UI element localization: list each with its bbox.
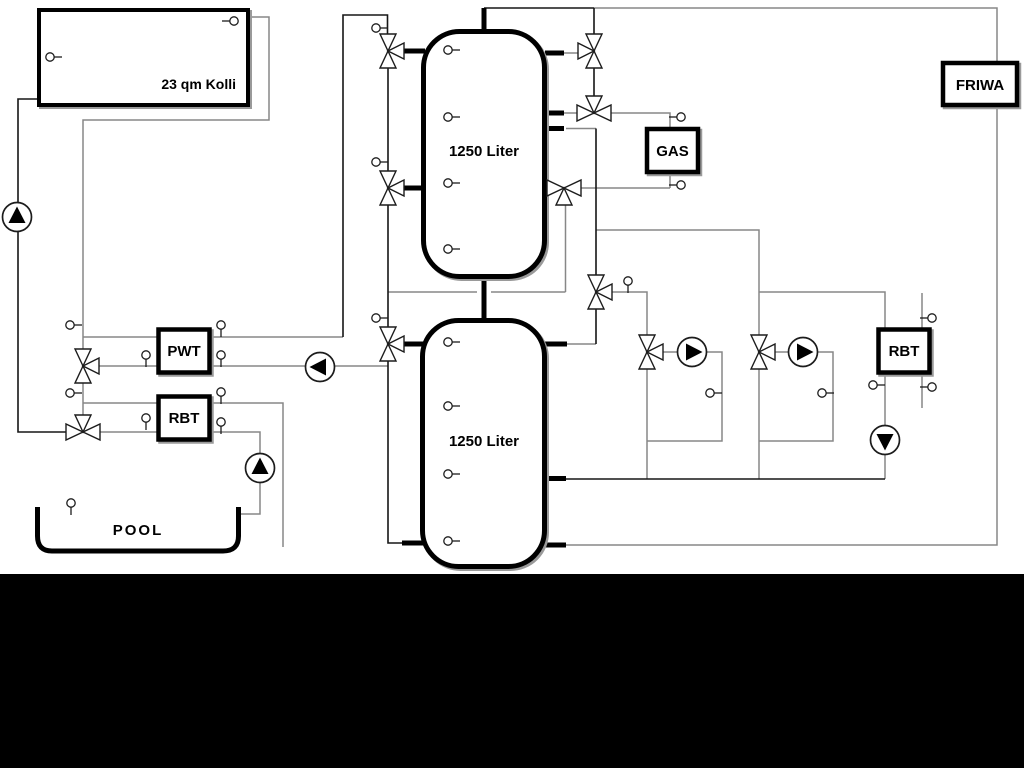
temperature-sensor-icon [372,24,388,32]
temperature-sensor-icon [217,388,225,404]
pipe-tank-left-column-lower [388,361,404,543]
temperature-sensor-icon [217,321,225,337]
circuit-2-pump-icon [789,338,818,367]
pipe-circuit1-feed [612,292,647,335]
three-way-valve-circuit1-icon [639,335,663,369]
pwt-secondary-pump-icon [306,353,335,382]
rbt-right-pump-icon [871,426,900,455]
pool-pump-icon [246,454,275,483]
three-way-valve-tank1-right-top-icon [578,34,602,68]
pipe-rbt-lower-to-pool [99,432,260,514]
three-way-valve-pool-icon [66,415,100,440]
pipe-solar-primary [18,99,67,432]
temperature-sensor-icon [706,389,722,397]
three-way-valve-distribution-icon [588,275,612,309]
pwt-label: PWT [167,343,200,360]
three-way-valve-tank2-left-icon [380,327,404,361]
pipe-gas-supply [610,113,670,128]
solar-collector-label: 23 qm Kolli [161,76,236,92]
temperature-sensor-icon [67,499,75,515]
circuit-1-pump-icon [678,338,707,367]
bottom-black-bar [0,574,1024,768]
temperature-sensor-icon [66,321,82,329]
pipe-gas-return [581,173,670,188]
gas-boiler-label: GAS [656,143,689,160]
temperature-sensor-icon [669,181,685,189]
three-way-valve-tank1-left-top-icon [380,34,404,68]
temperature-sensor-icon [869,381,885,389]
three-way-valve-pwt-icon [75,349,99,383]
solar-pump-icon [3,203,32,232]
screenshot-canvas: 1250 Liter 1250 Liter 23 qm Kolli PWT RB… [0,0,1024,768]
buffer-tank-bottom-label: 1250 Liter [449,433,519,450]
temperature-sensor-icon [818,389,834,397]
three-way-valve-tank1-left-mid-icon [380,171,404,205]
temperature-sensor-icon [66,389,82,397]
temperature-sensor-icon [217,351,225,367]
rbt-right-label: RBT [889,343,920,360]
pipe-rbt-right-feed [759,292,885,328]
hydraulic-schematic-diagram: 1250 Liter 1250 Liter 23 qm Kolli PWT RB… [0,0,1024,574]
three-way-valve-gas-supply-icon [577,96,611,121]
friwa-label: FRIWA [956,77,1004,94]
pipe-circuit2-feed [596,230,759,335]
temperature-sensor-icon [142,414,150,430]
pool-label: POOL [113,522,164,539]
temperature-sensor-icon [669,113,685,121]
buffer-tank-top-label: 1250 Liter [449,143,519,160]
temperature-sensor-icon [372,314,388,322]
pipe-solar-riser [343,15,388,337]
temperature-sensor-icon [142,351,150,367]
temperature-sensor-icon [372,158,388,166]
rbt-left-label: RBT [169,410,200,427]
temperature-sensor-icon [624,277,632,293]
three-way-valve-circuit2-icon [751,335,775,369]
three-way-valve-gas-return-icon [547,180,581,205]
